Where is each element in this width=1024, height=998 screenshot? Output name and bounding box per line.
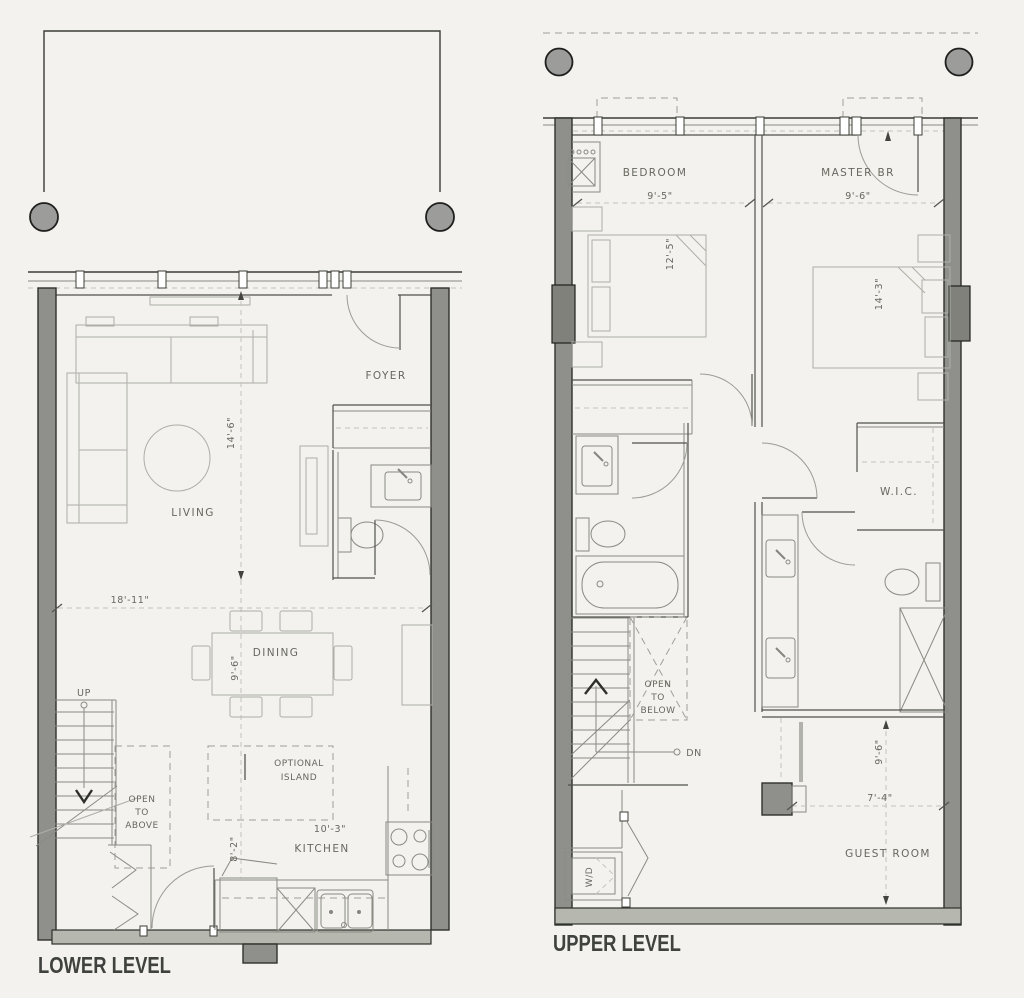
svg-text:ISLAND: ISLAND xyxy=(281,773,317,783)
bathroom-door-swing xyxy=(632,443,687,498)
foyer-closet xyxy=(333,405,431,448)
foyer-label: FOYER xyxy=(365,370,406,382)
bedroom-door-swing xyxy=(700,374,752,426)
overhang-outline xyxy=(597,98,677,118)
svg-text:TO: TO xyxy=(650,693,665,703)
pier xyxy=(243,944,277,963)
dishwasher xyxy=(277,888,315,932)
swing-direction-arrow xyxy=(885,131,891,141)
bifold-door xyxy=(626,820,648,896)
lower-level-title: LOWER LEVEL xyxy=(38,952,171,979)
open-to-above-label: TO xyxy=(134,808,149,818)
toilet-tank xyxy=(926,563,940,601)
dn-label: DN xyxy=(686,748,702,759)
toilet-tank xyxy=(576,518,589,551)
dining-table xyxy=(192,611,352,717)
svg-text:7'-4": 7'-4" xyxy=(867,793,893,804)
shaft-block-side xyxy=(792,786,806,812)
powder-room xyxy=(333,450,431,580)
sink xyxy=(766,540,795,577)
fridge xyxy=(220,858,277,932)
guest-room-label: GUEST ROOM xyxy=(845,848,931,860)
sofa xyxy=(67,317,267,523)
lower-window-wall xyxy=(28,271,462,350)
bottom-wall xyxy=(555,908,961,924)
master-depth-dim: 14'-3" xyxy=(874,278,885,310)
upper-level-title: UPPER LEVEL xyxy=(553,930,681,957)
open-to-above-label: OPEN xyxy=(129,795,156,805)
toilet xyxy=(351,522,383,548)
lower-level-plan: UP OPEN TO ABOVE xyxy=(28,31,462,963)
master-width-dim: 9'-6" xyxy=(763,191,944,207)
main-bathroom xyxy=(572,423,688,617)
window-sill xyxy=(150,297,250,305)
shower xyxy=(900,608,948,712)
stove xyxy=(386,822,432,875)
kitchen-depth-dim: 8'-2" xyxy=(229,836,240,862)
svg-text:9'-6": 9'-6" xyxy=(845,191,871,202)
svg-text:9'-5": 9'-5" xyxy=(647,191,673,202)
terrace-outline xyxy=(44,31,440,192)
open-to-below: OPEN TO BELOW xyxy=(630,617,687,720)
sink xyxy=(385,472,421,500)
guest-width-dim: 7'-4" xyxy=(787,793,949,810)
toilet xyxy=(591,521,625,547)
balcony-door-swing xyxy=(858,135,918,195)
dining-depth-dim: 9'-6" xyxy=(230,655,241,681)
bedroom-closet xyxy=(572,380,692,434)
bifold-closet xyxy=(108,845,151,930)
bedroom-depth-dim: 12'-5" xyxy=(665,238,676,270)
floorplan-page: { "colors": { "background": "#f3f2ee", "… xyxy=(0,0,1024,998)
living-label: LIVING xyxy=(171,507,215,519)
open-to-above-label: ABOVE xyxy=(125,821,158,831)
bedroom-bed: 12'-5" xyxy=(572,207,706,367)
kitchen-label: KITCHEN xyxy=(294,843,349,855)
dining-label: DINING xyxy=(253,647,300,659)
overhang-outline xyxy=(843,98,922,118)
master-door-swing xyxy=(762,443,817,498)
bathtub xyxy=(576,556,684,614)
toilet-tank xyxy=(338,518,351,552)
toilet xyxy=(885,569,919,595)
living-width-dim: 18'-11" xyxy=(52,595,432,612)
right-wall xyxy=(431,288,449,930)
upper-level-plan: BEDROOM 9'-5" MASTER BR 9'-6" 12'-5" xyxy=(543,33,978,925)
stairs-up-label: UP xyxy=(77,688,91,699)
bedroom-label: BEDROOM xyxy=(623,167,688,179)
open-to-above: OPEN TO ABOVE xyxy=(115,746,170,868)
master-bed: 14'-3" xyxy=(813,235,950,400)
upper-window-wall xyxy=(543,117,978,195)
floorplan-canvas: UP OPEN TO ABOVE xyxy=(0,0,1024,998)
guest-room: 9'-6" 7'-4" GUEST ROOM xyxy=(787,720,949,905)
ensuite-bathroom xyxy=(762,515,948,712)
bath-door-swing xyxy=(375,520,430,575)
stairs-down: DN xyxy=(568,618,702,785)
column xyxy=(426,203,454,231)
window-block xyxy=(949,286,970,341)
master-label: MASTER BR xyxy=(821,167,895,179)
left-wall xyxy=(555,118,572,925)
svg-text:OPEN: OPEN xyxy=(645,680,672,690)
kitchen: 10'-3" KITCHEN 8'-2" xyxy=(215,625,432,932)
window-block xyxy=(552,285,575,343)
partition xyxy=(799,722,803,782)
sink xyxy=(766,638,795,678)
tv-console xyxy=(300,446,328,546)
walk-in-closet: W.I.C. xyxy=(857,423,944,530)
entry-door-swing xyxy=(347,295,400,348)
svg-text:18'-11": 18'-11" xyxy=(111,595,150,606)
bedroom-width-dim: 9'-5" xyxy=(572,191,755,207)
kitchen-sink xyxy=(317,890,373,932)
optional-island: OPTIONAL ISLAND xyxy=(208,746,333,820)
wd-label: W/D xyxy=(585,867,595,887)
guest-depth-dim: 9'-6" xyxy=(874,739,885,765)
coffee-table xyxy=(144,425,210,491)
svg-text:OPTIONAL: OPTIONAL xyxy=(274,759,324,769)
lower-entry-door xyxy=(140,866,217,936)
mechanical-shaft xyxy=(568,142,600,192)
column xyxy=(30,203,58,231)
living-depth-dim: 14'-6" xyxy=(226,417,237,449)
svg-text:BELOW: BELOW xyxy=(640,706,675,716)
column xyxy=(946,49,973,76)
ensuite-door-swing xyxy=(802,512,855,565)
wic-label: W.I.C. xyxy=(880,486,918,498)
pantry xyxy=(402,625,432,705)
kitchen-width-dim: 10'-3" xyxy=(314,824,346,835)
laundry: W/D xyxy=(563,790,648,907)
column xyxy=(546,49,573,76)
